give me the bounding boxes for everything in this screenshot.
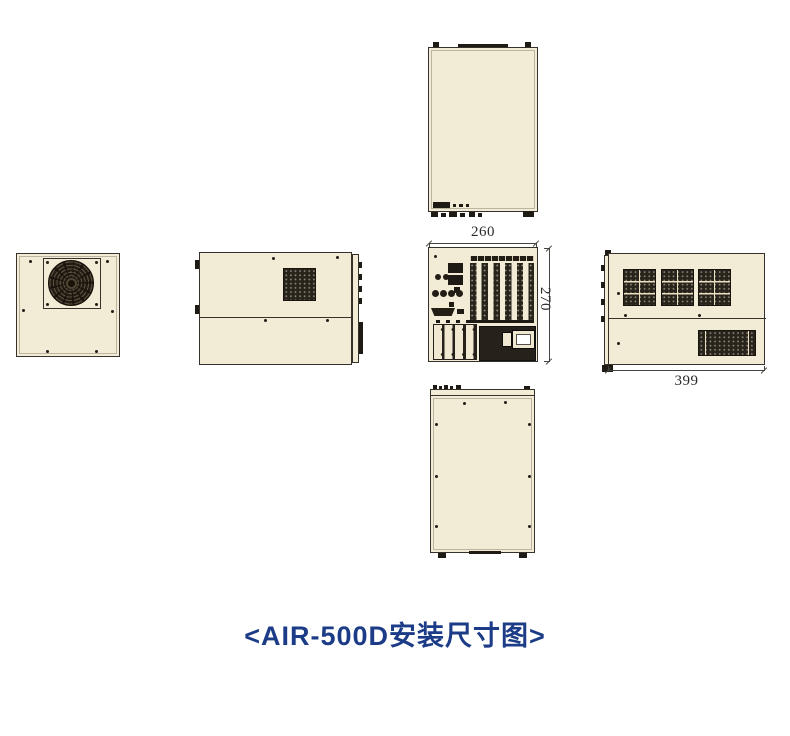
foot-tab (438, 553, 446, 558)
io-connector-cluster (431, 260, 469, 322)
fan-screw (95, 303, 98, 306)
screw-dot (434, 255, 437, 258)
edge-nub (359, 262, 362, 268)
expansion-slot-brackets (470, 263, 534, 320)
foot-tab (523, 211, 534, 217)
vent-grille (623, 269, 656, 306)
dimension-line-depth (608, 370, 765, 371)
slot-bottom-rail (470, 320, 534, 323)
power-inlet (512, 330, 535, 349)
foot-tab (469, 212, 475, 217)
slot-tick (466, 320, 470, 323)
fan-grille-icon (48, 260, 94, 306)
label-mark (453, 204, 456, 207)
edge-nub (359, 298, 362, 304)
power-supply-unit (479, 326, 536, 361)
audio-jack (432, 290, 439, 297)
fan-frame (43, 258, 101, 309)
screw-dot (617, 342, 620, 345)
panel-inner-outline (431, 50, 535, 209)
fan-hub (66, 278, 77, 289)
panel-inner-outline (433, 398, 532, 550)
side-right-panel (608, 253, 765, 365)
air-500d-dimension-diagram: 260 (0, 0, 790, 736)
label-mark (466, 204, 469, 207)
left-panel-view (16, 253, 120, 357)
dimension-line-width (429, 243, 537, 244)
dimension-tick (546, 358, 552, 364)
screw-dot (336, 256, 339, 259)
rear-edge-strip (352, 254, 359, 363)
side-view-right (598, 250, 772, 380)
dimension-label-width: 260 (428, 224, 538, 241)
audio-jack (440, 290, 447, 297)
rear-view (428, 247, 538, 362)
audio-jack (448, 290, 455, 297)
vent-grille (698, 330, 756, 356)
vent-grille (698, 269, 731, 306)
audio-jack (435, 274, 441, 280)
edge-nub (359, 286, 362, 292)
panel-seam (609, 318, 766, 319)
screw-dot (617, 292, 620, 295)
edge-nub (601, 265, 605, 271)
vent-grille (661, 269, 694, 306)
bottom-view-panel (430, 395, 535, 553)
fan-screw (46, 303, 49, 306)
screw-dot (272, 257, 275, 260)
power-switch (502, 332, 512, 347)
screw-dot (698, 314, 701, 317)
edge-nub (601, 282, 605, 288)
usb-port (448, 263, 463, 273)
slot-tick (456, 320, 460, 323)
audio-jack (456, 290, 463, 297)
dimension-label-depth: 399 (608, 373, 765, 390)
edge-nub (359, 274, 362, 280)
slot-tick (436, 320, 440, 323)
panel-seam (200, 317, 353, 318)
label-sticker (433, 202, 450, 208)
io-connector (449, 302, 454, 307)
fan-screw (46, 261, 49, 264)
foot-tab (519, 553, 527, 558)
vent-grille (283, 268, 316, 301)
vga-connector (431, 308, 455, 316)
fan-screw (95, 261, 98, 264)
edge-nub (601, 299, 605, 305)
io-connector (457, 309, 464, 314)
top-view-panel (428, 47, 538, 212)
screw-dot (624, 314, 627, 317)
screw-dot (326, 319, 329, 322)
side-left-panel (199, 252, 352, 365)
card-retention-rail (470, 256, 534, 261)
power-inlet-socket (516, 334, 531, 345)
slot-tick (446, 320, 450, 323)
label-mark (459, 204, 463, 207)
bottom-notch (469, 551, 501, 554)
foot-tab (460, 213, 465, 217)
screw-dot (264, 319, 267, 322)
usb-port (448, 275, 463, 285)
foot-tab (449, 212, 457, 217)
foot-tab (431, 212, 438, 217)
edge-bracket (359, 322, 363, 354)
top-view (428, 40, 538, 220)
diagram-caption: <AIR-500D安装尺寸图> (0, 614, 790, 653)
dimension-label-height: 270 (536, 287, 553, 311)
audio-jack (443, 274, 449, 280)
edge-nub (601, 316, 605, 322)
foot-tab (441, 213, 446, 217)
bottom-view (430, 385, 536, 563)
side-view-left (193, 250, 369, 372)
slot-cover-plates (433, 324, 477, 360)
foot-tab (478, 213, 482, 217)
